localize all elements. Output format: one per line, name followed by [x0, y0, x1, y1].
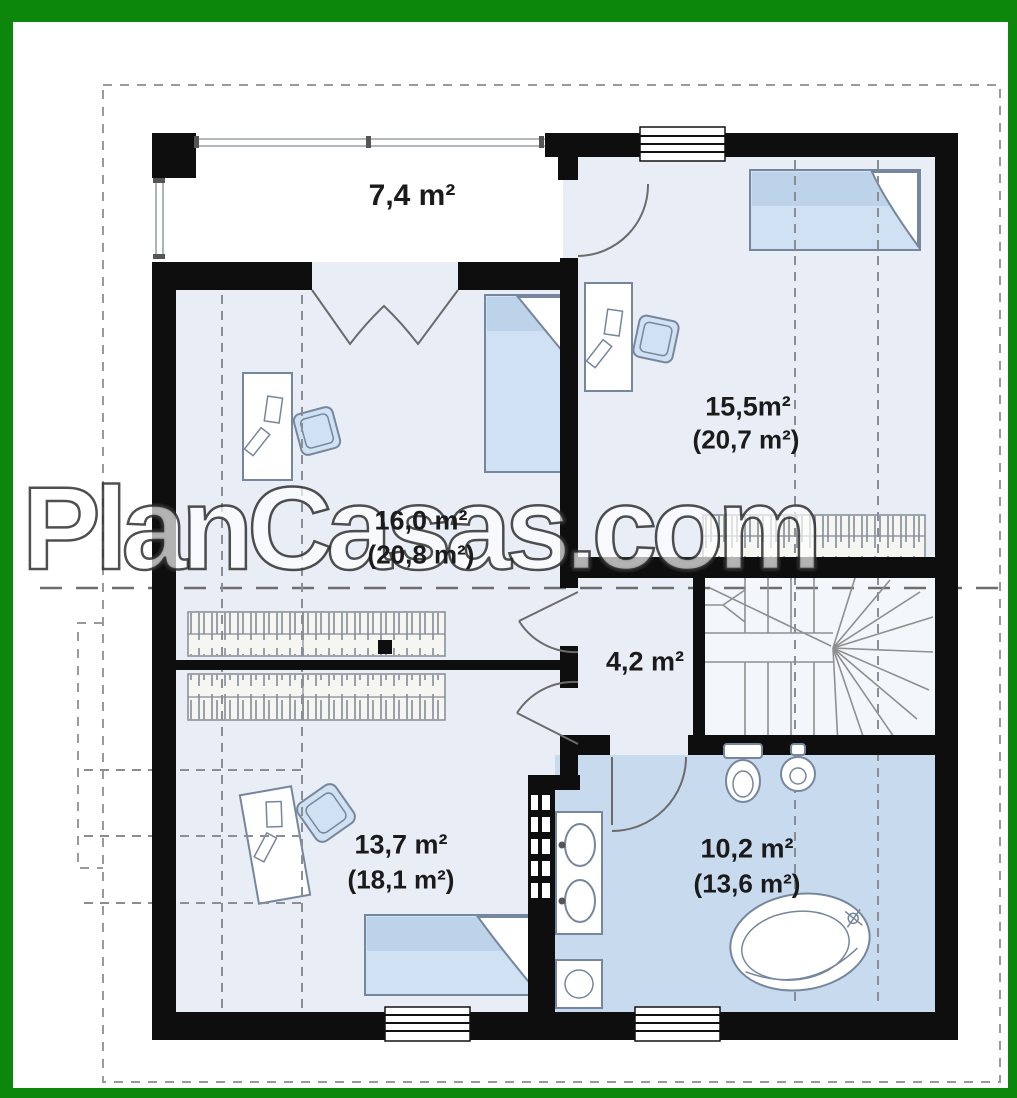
window-bottom-left — [385, 1007, 470, 1041]
window-bottom-bath — [635, 1007, 720, 1041]
label-bedroom-top-right-gross: (20,7 m²) — [693, 425, 800, 456]
bed-middle-left — [485, 295, 565, 472]
wardrobe-lower-left — [188, 674, 445, 720]
label-room-middle-left-area: 16,0 m² — [374, 506, 467, 537]
washer — [556, 960, 602, 1008]
chair-top-right — [632, 314, 680, 363]
bed-bottom-left — [365, 915, 535, 995]
green-border-bottom — [0, 1088, 1017, 1098]
window-top-bedroom — [640, 127, 725, 161]
label-hall-area: 4,2 m² — [606, 647, 684, 678]
label-bathroom-area: 10,2 m² — [700, 834, 793, 865]
green-border-left — [0, 0, 13, 1098]
wardrobe-upper-left — [188, 612, 445, 656]
bed-top-right — [750, 170, 920, 250]
toilet — [724, 744, 762, 802]
label-balcony-area: 7,4 m² — [369, 179, 456, 213]
desk-top-right — [585, 283, 632, 391]
label-bedroom-top-right-area: 15,5m² — [705, 392, 791, 423]
label-bedroom-bottom-left-gross: (18,1 m²) — [348, 865, 455, 896]
green-border-top — [0, 0, 1017, 22]
green-border-right — [1008, 0, 1017, 1098]
label-bedroom-bottom-left-area: 13,7 m² — [354, 830, 447, 861]
label-room-middle-left-gross: (20,8 m²) — [368, 540, 475, 571]
label-bathroom-gross: (13,6 m²) — [694, 869, 801, 900]
double-sink — [556, 812, 602, 934]
